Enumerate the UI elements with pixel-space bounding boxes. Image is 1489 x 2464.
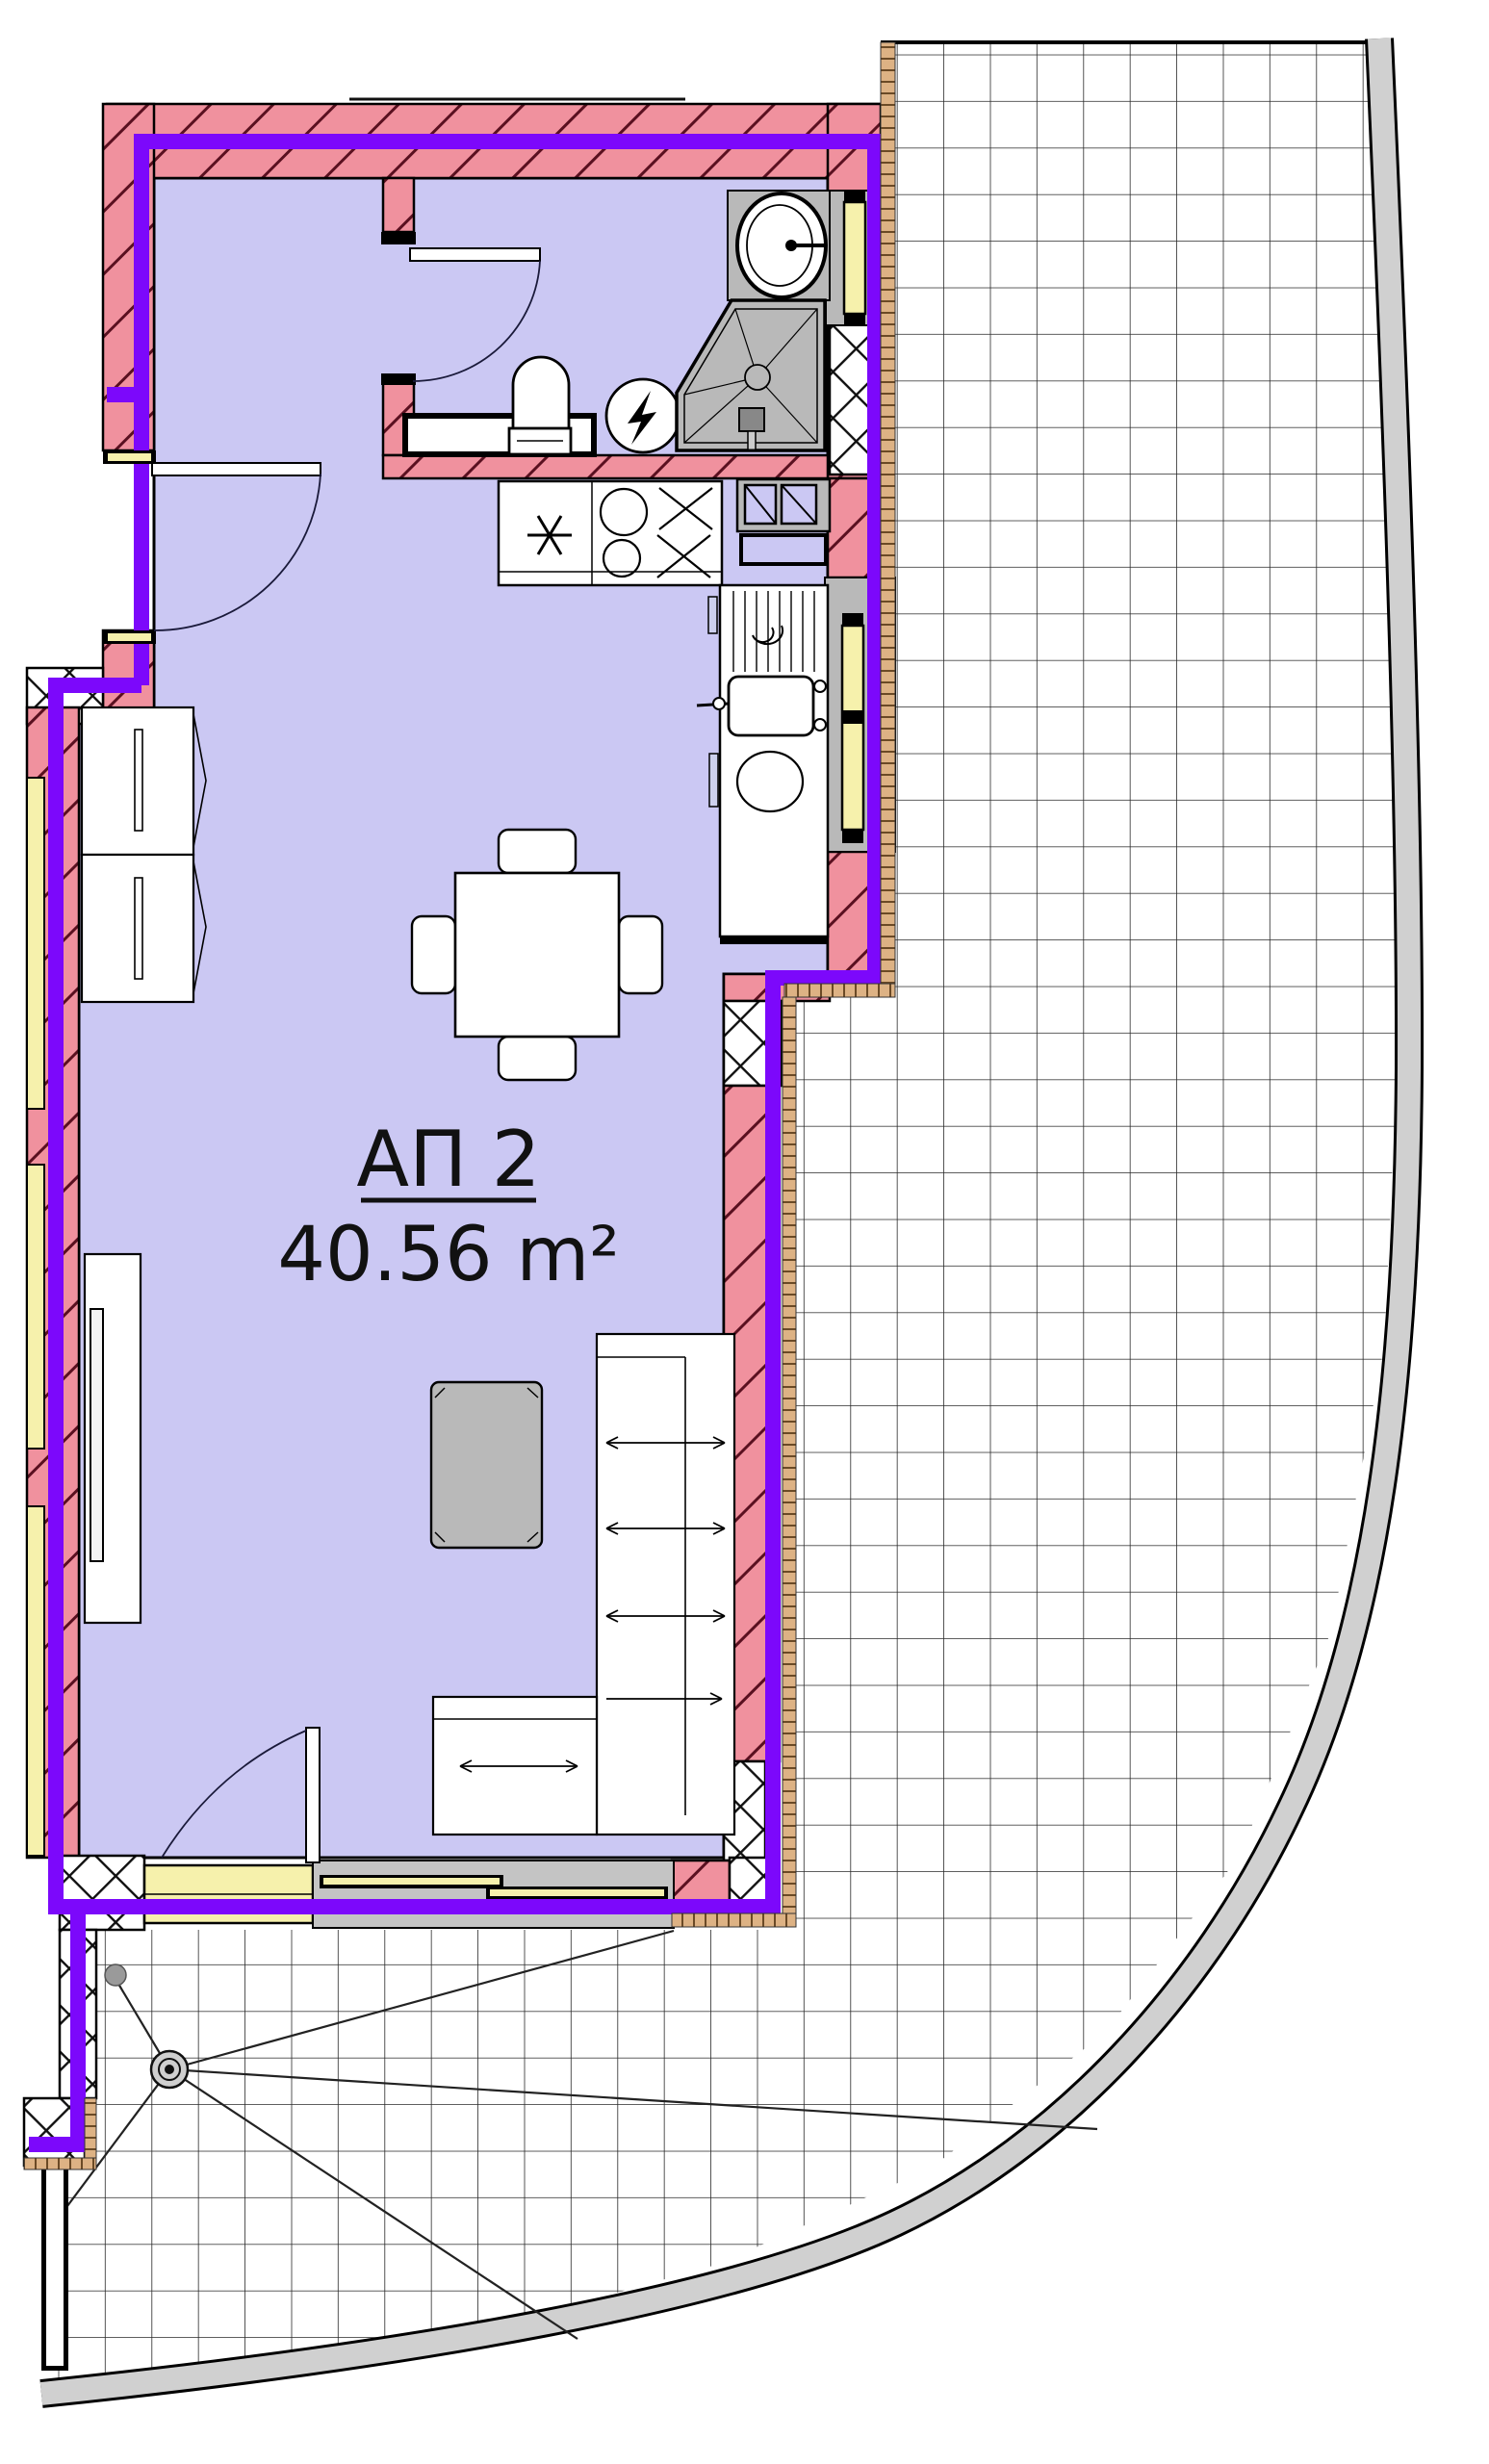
kitchen-wall-unit (737, 479, 830, 564)
terrace-dot (105, 1964, 126, 1986)
dining-chair-s (499, 1037, 576, 1080)
floor-plan: АП 2 40.56 m² (0, 0, 1489, 2464)
floor-drain-icon (151, 2051, 188, 2088)
radiator-2 (709, 754, 718, 807)
unit-label: АП 2 (356, 1115, 540, 1204)
trim-se (672, 1913, 796, 1927)
sliding-door (313, 1861, 674, 1928)
bath-window (844, 202, 865, 314)
trim-east-upper (881, 42, 895, 984)
radiator-1 (708, 597, 717, 633)
bath-door-jamb-1 (381, 232, 416, 244)
wall-se-block (672, 1861, 730, 1903)
trim-jog (784, 984, 895, 997)
unit-area: 40.56 m² (277, 1212, 619, 1298)
water-heater-icon (606, 379, 680, 452)
trim-parapet-e (85, 2098, 96, 2168)
bay-window-3 (27, 1506, 44, 1856)
washing-machine-icon (737, 752, 803, 811)
bay-window-1 (27, 778, 44, 1109)
trim-east-lower (783, 997, 796, 1915)
wall-partition-upper (383, 178, 414, 232)
pier-se (730, 1858, 770, 1903)
dining-chair-e (619, 916, 662, 993)
kitchen-counter-top (499, 481, 722, 585)
coffee-table (431, 1382, 542, 1548)
dining-chair-w (412, 916, 455, 993)
washbasin-icon (737, 193, 826, 297)
parapet-wall (41, 2166, 68, 2371)
dining-table (455, 873, 619, 1037)
dining-chair-n (499, 830, 576, 873)
toilet-icon (509, 357, 571, 454)
bay-window-2 (27, 1165, 44, 1449)
wall-bath-south (383, 455, 874, 478)
trim-parapet-s (24, 2158, 96, 2169)
kitchen-window (842, 626, 863, 830)
bath-door-jamb-2 (381, 373, 416, 385)
wardrobe (82, 707, 206, 1002)
tv-cabinet (85, 1254, 141, 1623)
